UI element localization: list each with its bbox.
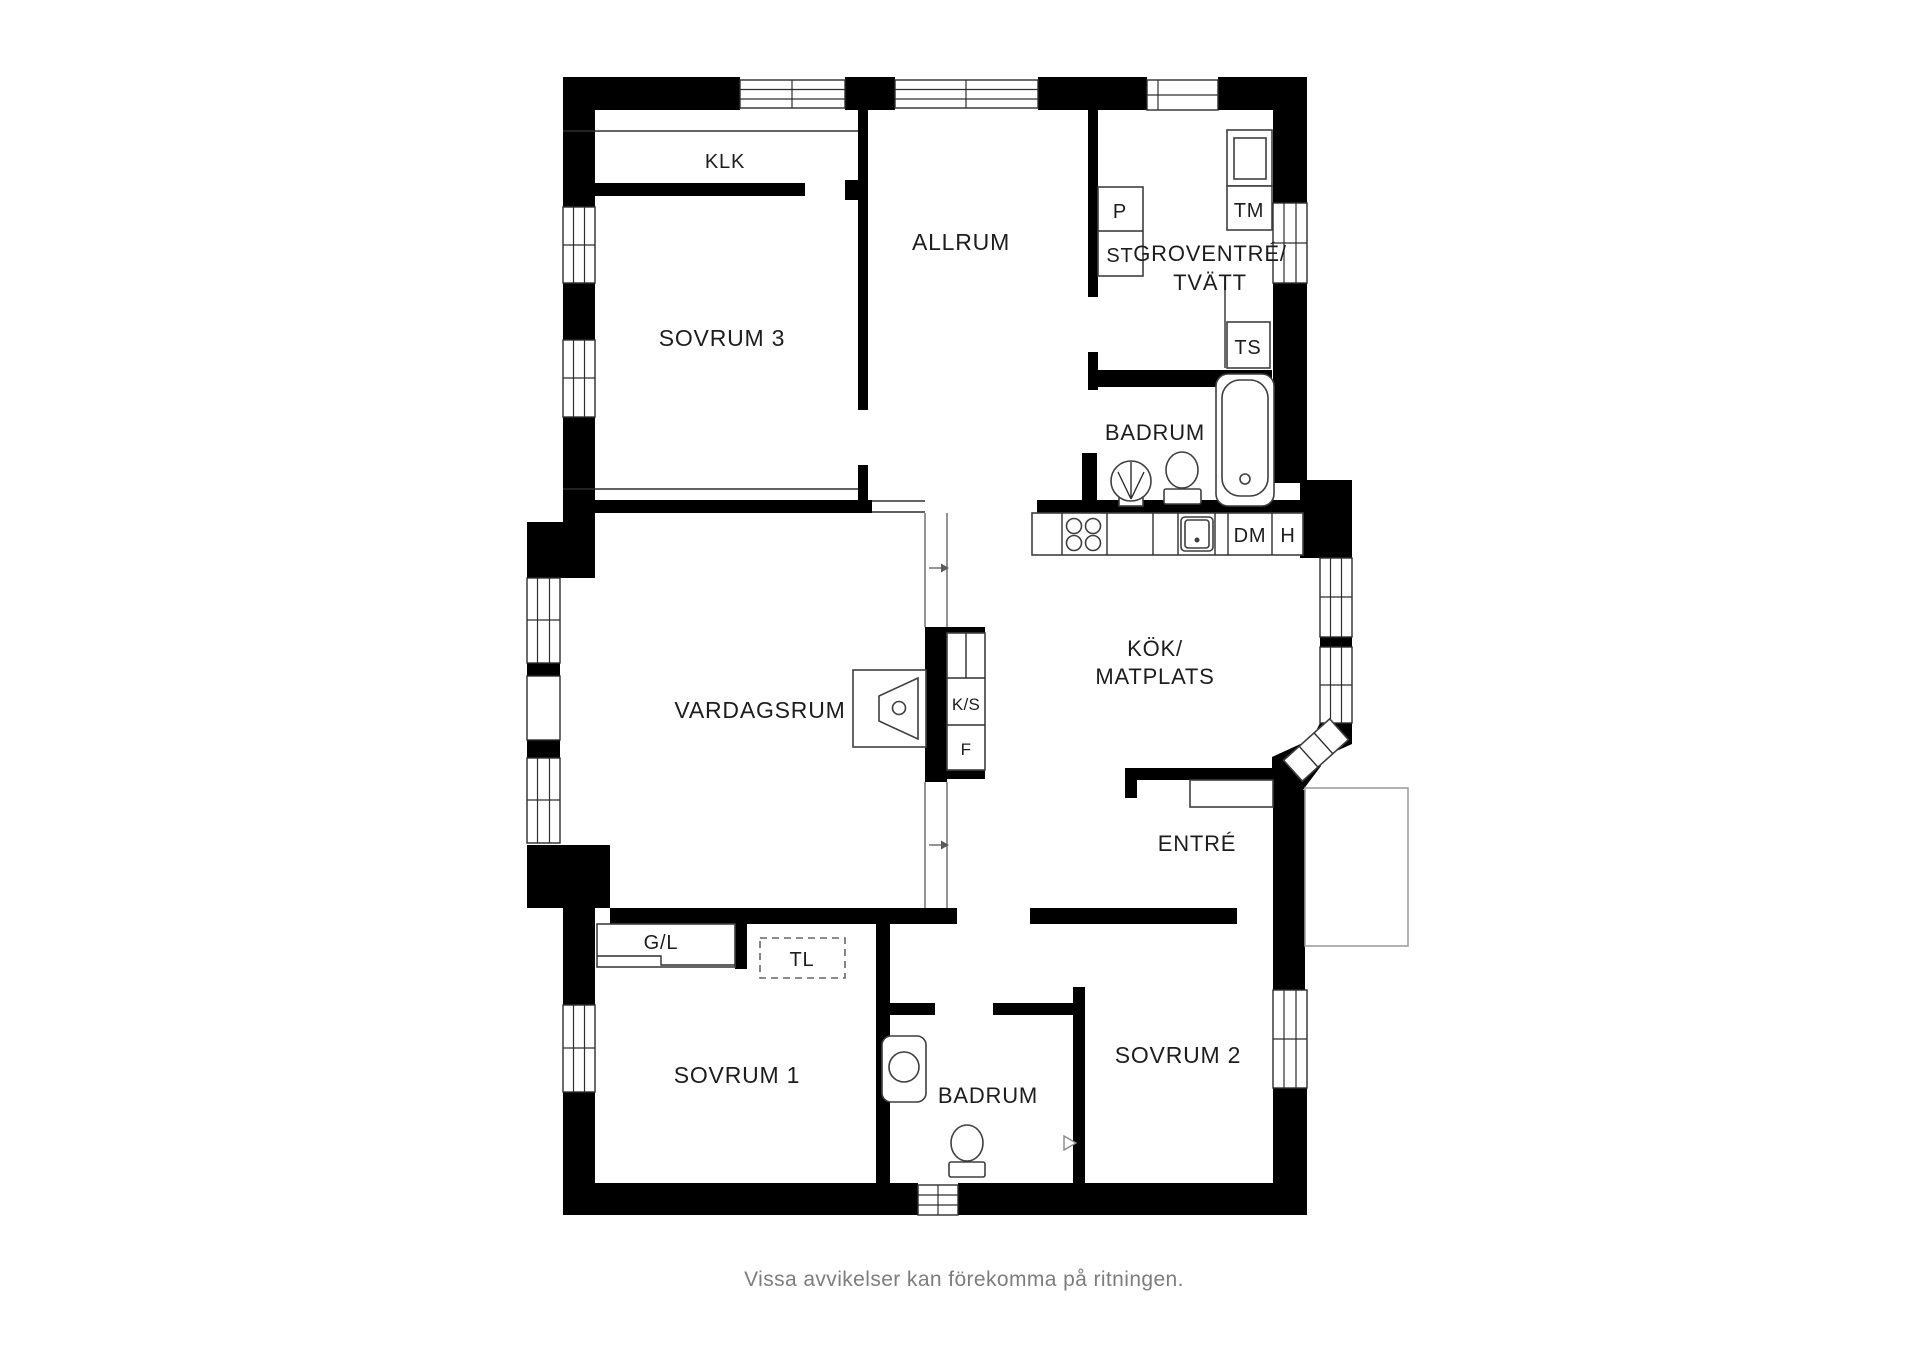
sink-icon <box>1111 461 1151 506</box>
window <box>740 80 845 108</box>
fixture-label-f: F <box>961 740 972 759</box>
floor-plan-drawing: KLK SOVRUM 3 ALLRUM P ST GROVENTRÉ/ TVÄT… <box>0 0 1920 1357</box>
room-label-sovrum3: SOVRUM 3 <box>659 325 786 351</box>
window <box>895 80 1038 108</box>
sliding-door-arrow-icon <box>929 564 949 573</box>
room-label-kok-line2: MATPLATS <box>1095 664 1214 689</box>
entry-porch-outline <box>1305 788 1408 946</box>
fixture-label-p: P <box>1113 201 1127 223</box>
toilet-icon <box>949 1125 985 1177</box>
room-label-vardagsrum: VARDAGSRUM <box>674 697 845 723</box>
fixture-label-st: ST <box>1106 245 1133 267</box>
room-label-allrum: ALLRUM <box>912 229 1010 255</box>
window <box>918 1185 958 1215</box>
bathtub-icon <box>1216 374 1274 506</box>
coat-niche <box>1190 780 1273 807</box>
fixture-label-tm: TM <box>1234 200 1264 222</box>
window <box>563 1005 595 1092</box>
room-label-badrum-bottom: BADRUM <box>938 1083 1038 1108</box>
footer-note: Vissa avvikelser kan förekomma på ritnin… <box>744 1268 1184 1291</box>
fixture-label-gl: G/L <box>644 932 679 954</box>
fixture-label-dm: DM <box>1234 525 1267 547</box>
room-label-kok-line1: KÖK/ <box>1127 636 1183 661</box>
room-label-badrum-top: BADRUM <box>1105 420 1205 445</box>
kitchen-sink-icon <box>1181 517 1213 551</box>
toilet-icon <box>1164 452 1201 504</box>
window <box>527 758 560 843</box>
fireplace-icon <box>853 670 926 747</box>
sink-icon <box>882 1036 926 1102</box>
window <box>1273 990 1307 1088</box>
room-label-sovrum2: SOVRUM 2 <box>1115 1042 1242 1068</box>
window <box>527 578 560 663</box>
window <box>563 340 595 417</box>
room-label-entre: ENTRÉ <box>1158 831 1237 856</box>
room-label-groventre-line2: TVÄTT <box>1173 270 1247 295</box>
room-label-sovrum1: SOVRUM 1 <box>674 1062 801 1088</box>
room-label-klk: KLK <box>705 151 745 173</box>
window <box>1320 647 1352 723</box>
fixture-label-ks: K/S <box>952 695 980 714</box>
exterior-door <box>1147 80 1218 110</box>
fixture-label-h: H <box>1280 525 1295 547</box>
fixture-label-tl: TL <box>790 949 815 971</box>
window <box>563 207 595 283</box>
window <box>527 676 560 740</box>
floor-plan-page: KLK SOVRUM 3 ALLRUM P ST GROVENTRÉ/ TVÄT… <box>0 0 1920 1357</box>
fixture-label-ts: TS <box>1234 337 1261 359</box>
room-label-groventre-line1: GROVENTRÉ/ <box>1133 241 1287 266</box>
sliding-door-arrow-icon <box>929 841 949 850</box>
window <box>1320 558 1352 637</box>
